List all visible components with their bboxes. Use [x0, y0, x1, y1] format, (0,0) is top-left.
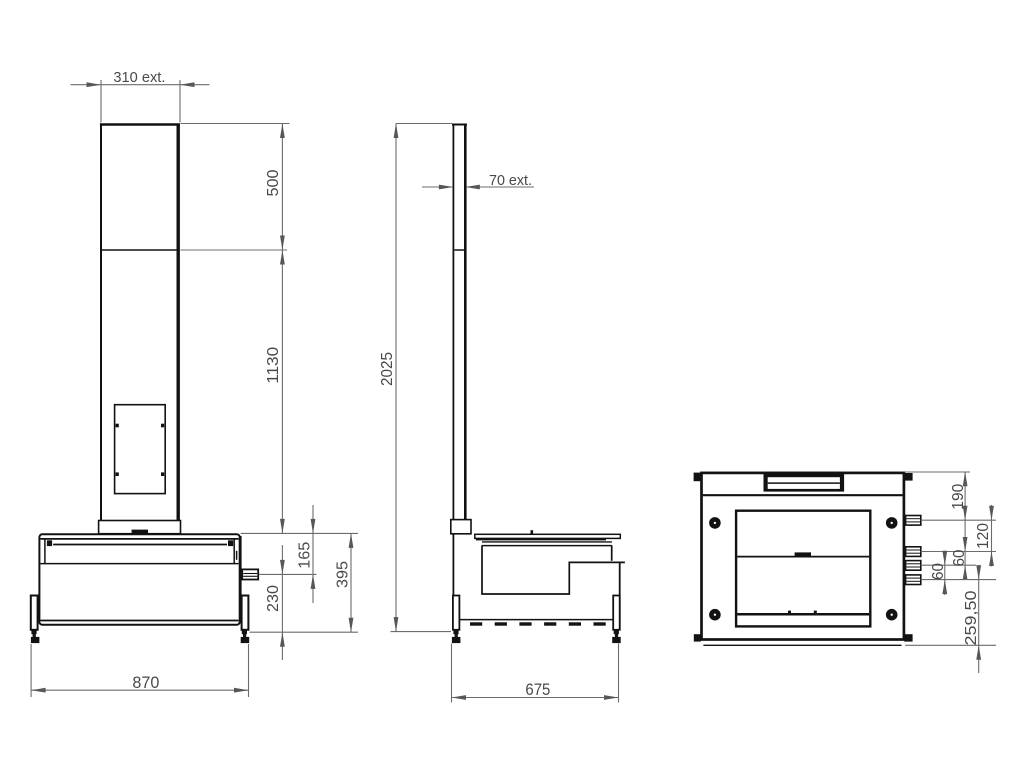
svg-text:1130: 1130	[265, 347, 282, 384]
svg-text:675: 675	[525, 680, 550, 699]
svg-text:60: 60	[930, 563, 947, 580]
svg-text:395: 395	[334, 561, 351, 588]
svg-text:190: 190	[950, 484, 967, 510]
svg-text:165: 165	[296, 542, 313, 569]
svg-text:60: 60	[951, 549, 968, 566]
svg-text:120: 120	[975, 523, 992, 549]
svg-text:259,50: 259,50	[963, 590, 980, 645]
svg-text:870: 870	[132, 673, 159, 692]
svg-text:2025: 2025	[379, 352, 396, 386]
svg-text:310 ext.: 310 ext.	[113, 69, 165, 86]
svg-text:70 ext.: 70 ext.	[489, 172, 532, 189]
svg-text:500: 500	[265, 169, 282, 196]
svg-text:230: 230	[265, 585, 282, 612]
